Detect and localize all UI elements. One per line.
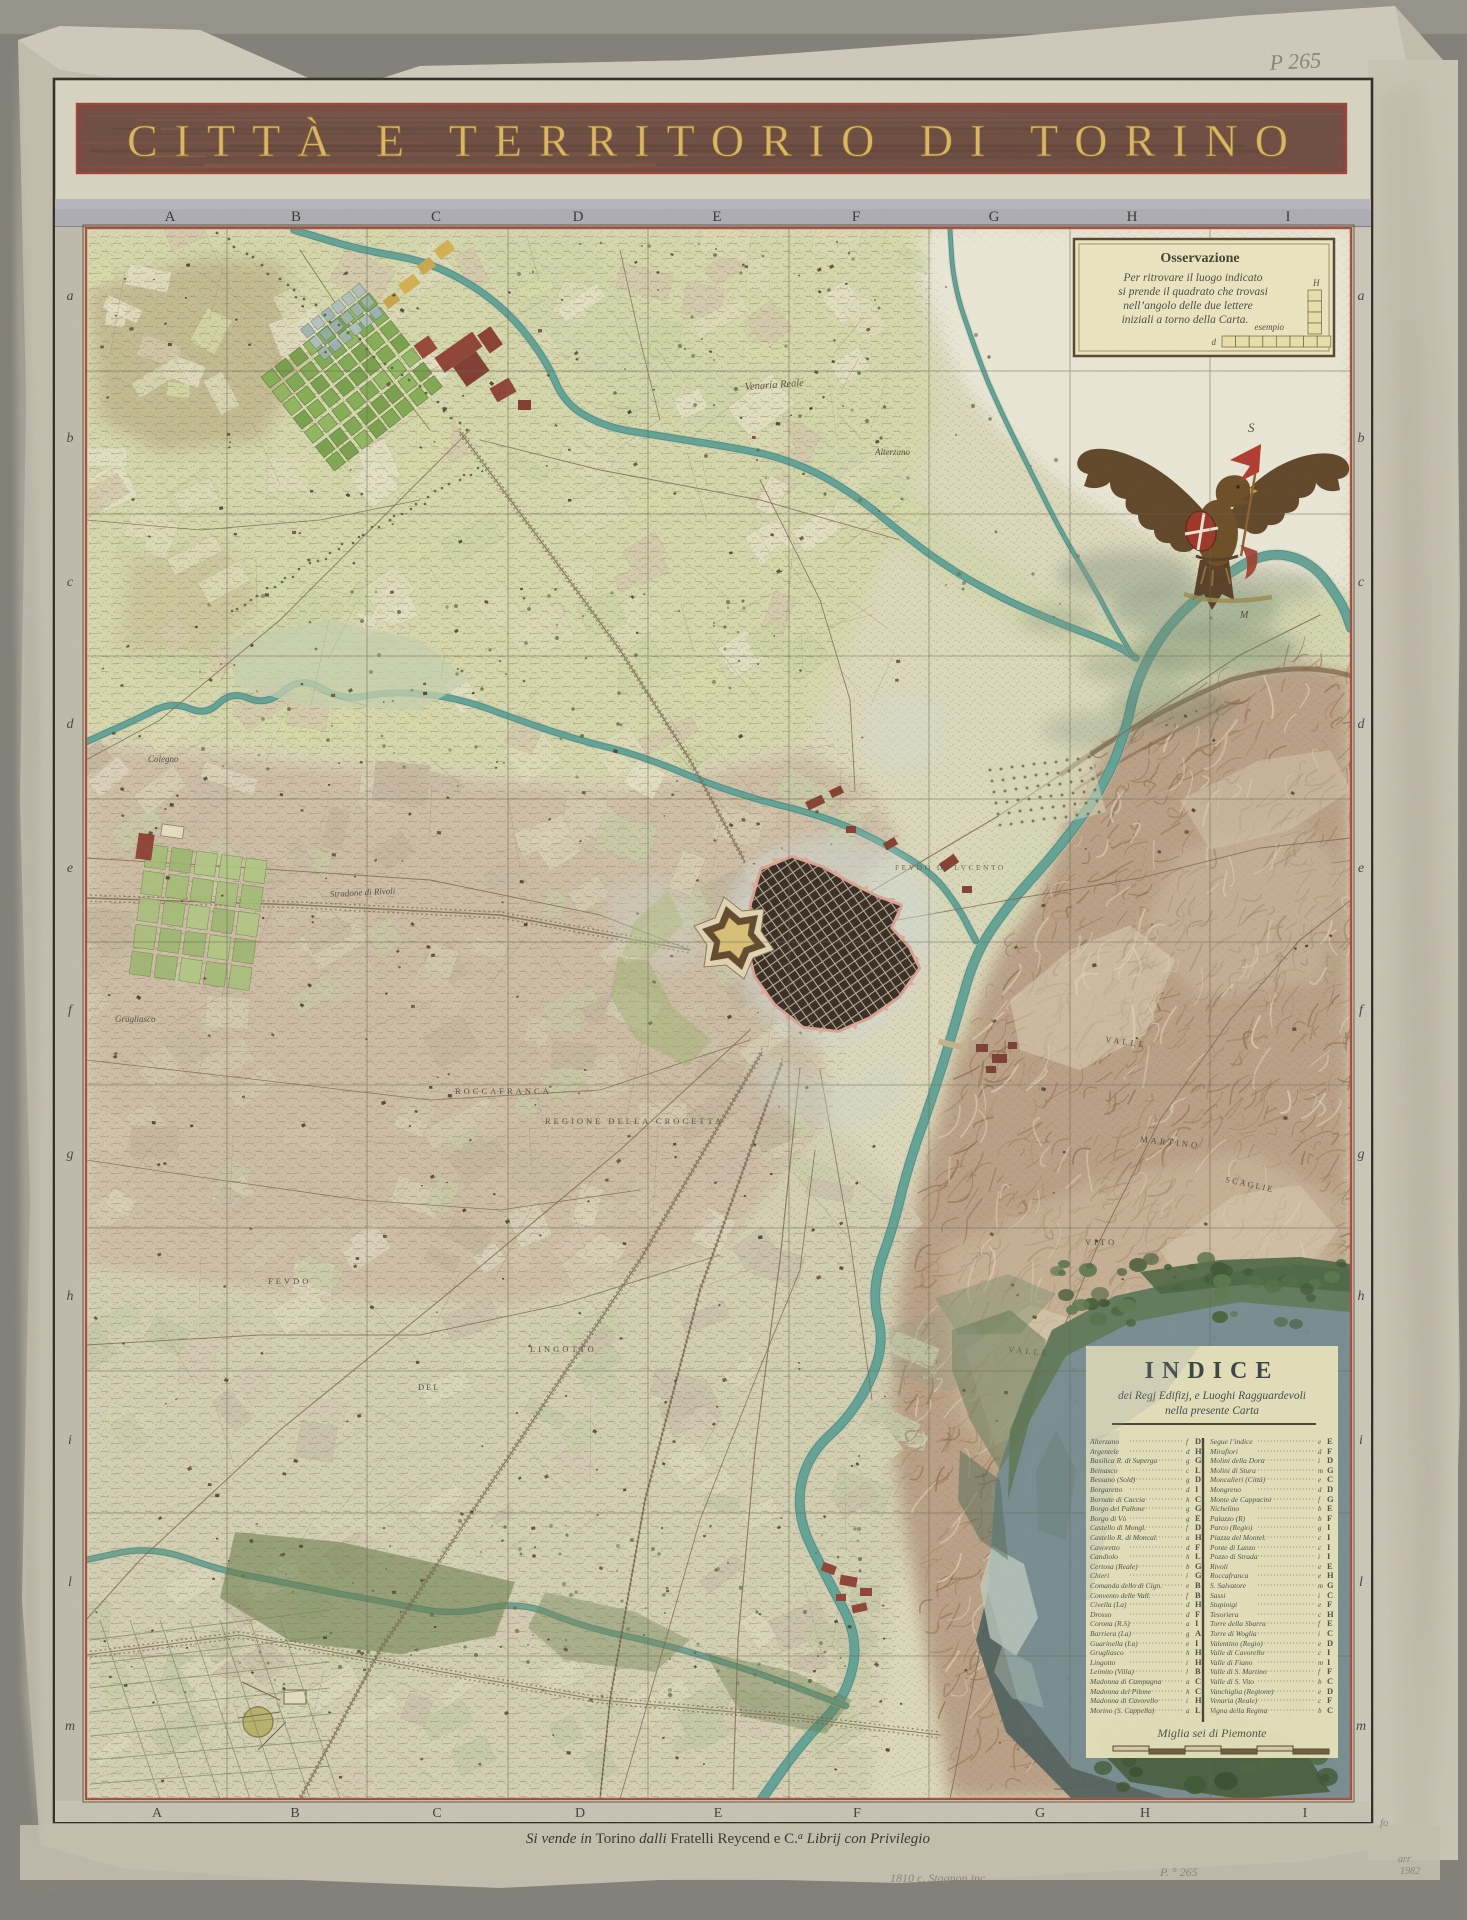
svg-text:Si vende in Torino dalli Frate: Si vende in Torino dalli Fratelli Reycen… (526, 1831, 930, 1847)
svg-text:arr: arr (1398, 1854, 1411, 1865)
svg-text:P. ° 265: P. ° 265 (1159, 1865, 1198, 1879)
svg-text:1810 c. Stagnon inc.: 1810 c. Stagnon inc. (890, 1871, 988, 1885)
svg-text:1982: 1982 (1400, 1866, 1420, 1877)
svg-text:26 1273: 26 1273 (30, 1878, 69, 1893)
svg-text:fo: fo (1380, 1817, 1389, 1829)
svg-text:P 265: P 265 (1268, 47, 1322, 75)
